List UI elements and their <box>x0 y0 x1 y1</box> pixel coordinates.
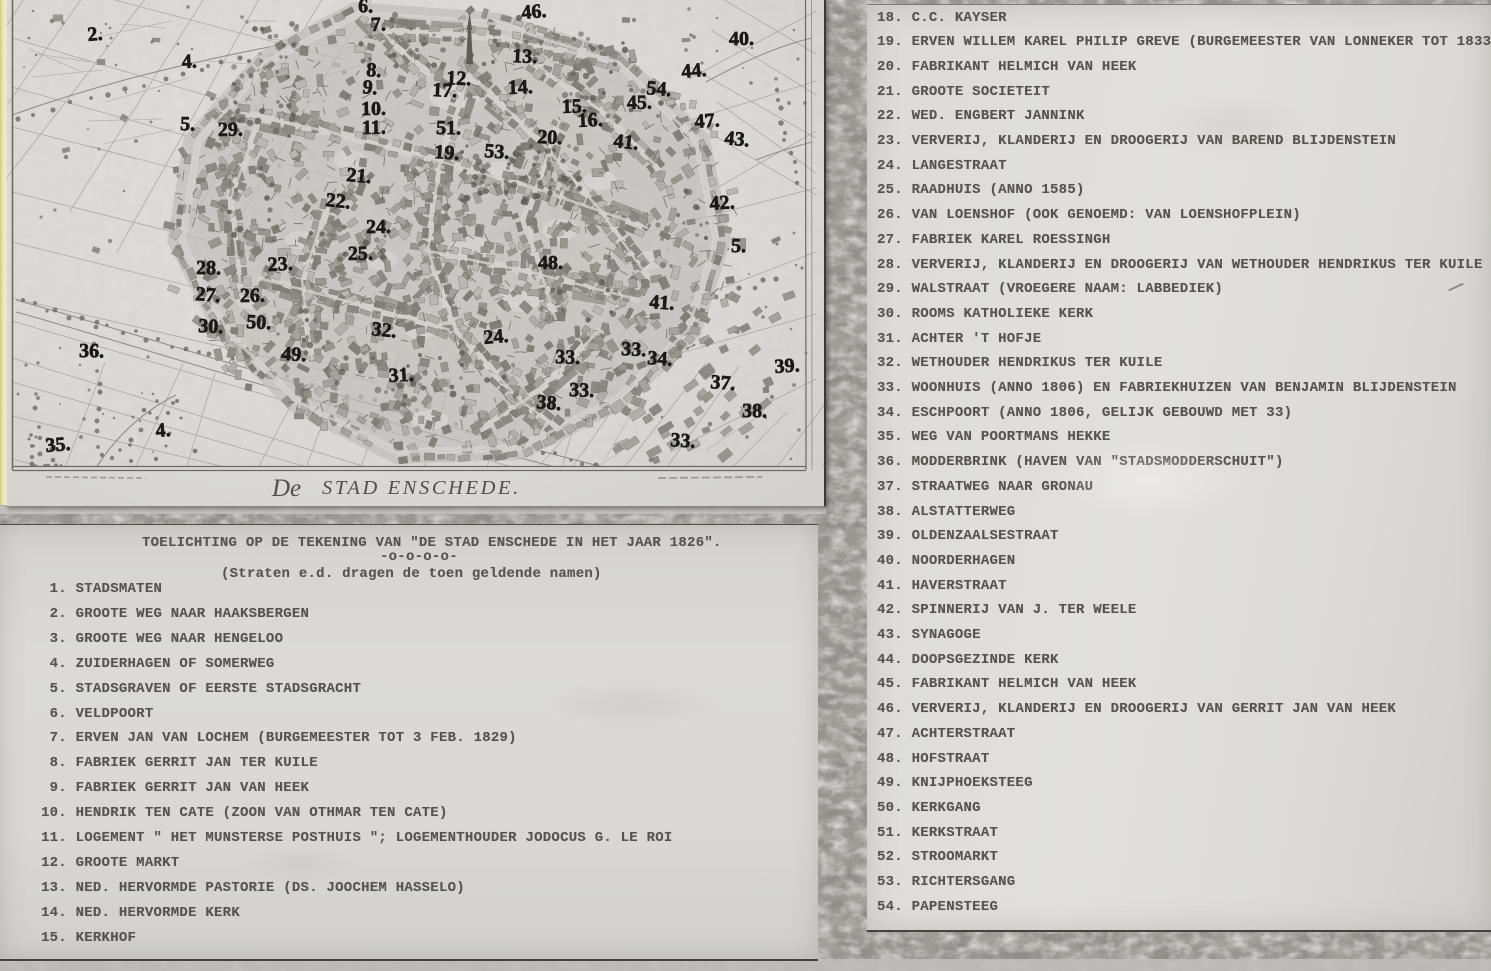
svg-text:42.: 42. <box>709 191 735 215</box>
svg-text:4.: 4. <box>181 50 197 73</box>
svg-text:41.: 41. <box>612 130 639 154</box>
svg-text:De: De <box>271 475 301 502</box>
svg-text:STAD ENSCHEDE.: STAD ENSCHEDE. <box>322 477 521 499</box>
svg-text:9.: 9. <box>361 76 378 99</box>
svg-text:14.: 14. <box>507 76 533 99</box>
svg-text:31.: 31. <box>388 364 414 387</box>
svg-text:32.: 32. <box>370 318 397 342</box>
svg-text:23.: 23. <box>267 253 293 276</box>
svg-text:38.: 38. <box>742 400 767 422</box>
svg-text:24.: 24. <box>366 216 391 238</box>
svg-text:22.: 22. <box>324 189 351 213</box>
svg-text:19.: 19. <box>434 141 460 165</box>
svg-text:26.: 26. <box>240 285 265 307</box>
svg-text:53.: 53. <box>484 140 510 164</box>
svg-text:36.: 36. <box>79 340 104 362</box>
svg-text:29.: 29. <box>218 119 243 141</box>
svg-text:27.: 27. <box>195 283 222 307</box>
svg-text:33.: 33. <box>670 429 696 453</box>
svg-text:49.: 49. <box>281 343 307 366</box>
svg-text:35.: 35. <box>45 433 72 457</box>
svg-text:44.: 44. <box>681 59 708 83</box>
svg-text:20.: 20. <box>537 126 563 149</box>
svg-text:50.: 50. <box>246 311 272 334</box>
svg-text:33.: 33. <box>555 346 581 369</box>
svg-text:30.: 30. <box>198 315 224 338</box>
svg-text:33.: 33. <box>569 379 595 402</box>
svg-text:7.: 7. <box>370 13 386 36</box>
svg-text:39.: 39. <box>774 354 800 378</box>
svg-text:11.: 11. <box>362 117 386 139</box>
svg-text:2.: 2. <box>87 23 104 46</box>
svg-text:24.: 24. <box>483 325 510 349</box>
svg-text:41.: 41. <box>649 291 675 315</box>
svg-text:47.: 47. <box>694 109 720 133</box>
svg-text:5.: 5. <box>731 235 746 257</box>
svg-text:28.: 28. <box>196 257 221 279</box>
svg-text:43.: 43. <box>723 127 750 151</box>
svg-text:46.: 46. <box>521 0 548 24</box>
svg-text:16.: 16. <box>577 109 603 132</box>
svg-text:33.: 33. <box>621 338 647 361</box>
svg-text:34.: 34. <box>647 347 673 371</box>
svg-text:17.: 17. <box>432 79 458 102</box>
svg-text:37.: 37. <box>710 371 737 395</box>
svg-text:51.: 51. <box>436 117 461 139</box>
svg-text:13.: 13. <box>512 45 538 68</box>
svg-text:5.: 5. <box>180 113 196 136</box>
svg-text:48.: 48. <box>538 252 563 274</box>
svg-text:40.: 40. <box>729 28 754 50</box>
svg-text:45.: 45. <box>627 92 652 114</box>
svg-text:21.: 21. <box>346 164 373 188</box>
svg-text:38.: 38. <box>536 391 563 415</box>
svg-text:4.: 4. <box>155 419 171 442</box>
svg-text:25.: 25. <box>348 243 373 265</box>
